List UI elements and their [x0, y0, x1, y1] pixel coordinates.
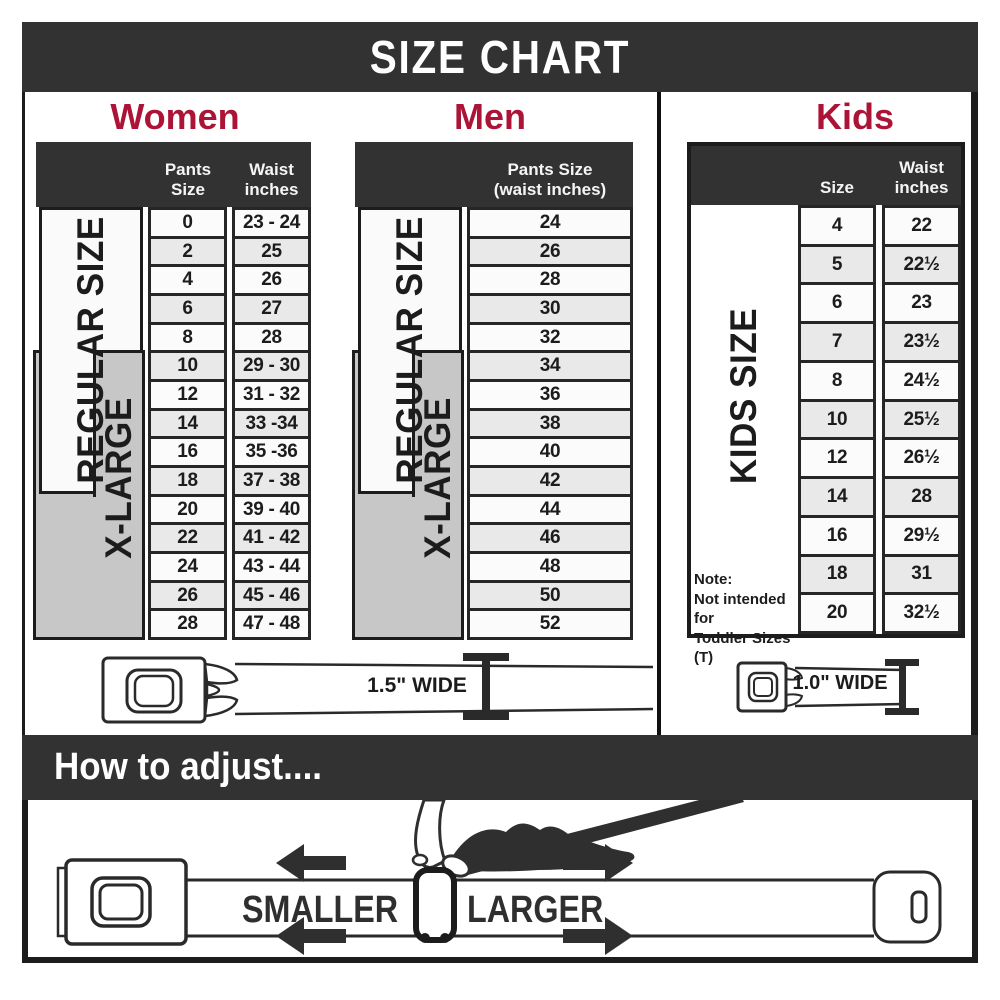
- kids-col-waist-header: Waist inches: [882, 158, 961, 198]
- women-col-size-header: Pants Size: [148, 160, 228, 200]
- women-col-waist-header: Waist inches: [232, 160, 311, 200]
- waist-cell: 22: [882, 205, 961, 247]
- size-cell: 48: [467, 551, 633, 583]
- waist-cell: 28: [232, 322, 311, 354]
- table-row: 24: [467, 207, 633, 239]
- size-cell: 10: [148, 350, 227, 382]
- size-chart: SIZE CHART Women Men Kids Pants Size Wai…: [0, 0, 1000, 1000]
- women-table-header: Pants Size Waist inches: [36, 142, 311, 207]
- table-row: 627: [148, 293, 311, 325]
- size-cell: 26: [148, 580, 227, 612]
- kids-note: Note: Not intended for Toddler Sizes (T): [694, 570, 802, 668]
- size-cell: 40: [467, 436, 633, 468]
- table-row: 32: [467, 322, 633, 354]
- table-row: 52: [467, 608, 633, 640]
- size-cell: 46: [467, 522, 633, 554]
- kids-belt-width-label: 1.0" WIDE: [770, 672, 910, 695]
- kids-heading: Kids: [745, 96, 965, 138]
- table-row: 2443 - 44: [148, 551, 311, 583]
- table-row: 522½: [798, 244, 961, 286]
- table-row: 28: [467, 264, 633, 296]
- table-row: 2032½: [798, 592, 961, 634]
- waist-cell: 22½: [882, 244, 961, 286]
- size-cell: 6: [798, 282, 876, 324]
- size-cell: 42: [467, 465, 633, 497]
- size-cell: 18: [798, 554, 876, 596]
- table-row: 2039 - 40: [148, 494, 311, 526]
- table-row: 2645 - 46: [148, 580, 311, 612]
- waist-cell: 35 -36: [232, 436, 311, 468]
- size-cell: 28: [148, 608, 227, 640]
- size-cell: 16: [148, 436, 227, 468]
- men-table: 242628303234363840424446485052: [467, 207, 633, 640]
- table-row: 34: [467, 350, 633, 382]
- waist-cell: 39 - 40: [232, 494, 311, 526]
- size-cell: 38: [467, 408, 633, 440]
- size-cell: 14: [798, 476, 876, 518]
- size-cell: 30: [467, 293, 633, 325]
- larger-label: LARGER: [467, 890, 603, 930]
- table-row: 26: [467, 236, 633, 268]
- size-cell: 8: [148, 322, 227, 354]
- table-row: 1831: [798, 554, 961, 596]
- table-row: 44: [467, 494, 633, 526]
- size-cell: 52: [467, 608, 633, 640]
- size-cell: 32: [467, 322, 633, 354]
- waist-cell: 23: [882, 282, 961, 324]
- adult-belt-width-label: 1.5" WIDE: [332, 674, 502, 698]
- size-cell: 2: [148, 236, 227, 268]
- panel-divider: [657, 92, 661, 735]
- size-cell: 50: [467, 580, 633, 612]
- waist-cell: 24½: [882, 360, 961, 402]
- waist-cell: 25½: [882, 399, 961, 441]
- size-cell: 4: [798, 205, 876, 247]
- waist-cell: 27: [232, 293, 311, 325]
- size-cell: 12: [798, 437, 876, 479]
- size-cell: 0: [148, 207, 227, 239]
- table-row: 1231 - 32: [148, 379, 311, 411]
- waist-cell: 29½: [882, 515, 961, 557]
- size-cell: 20: [148, 494, 227, 526]
- size-cell: 26: [467, 236, 633, 268]
- men-heading: Men: [380, 96, 600, 138]
- title-band: SIZE CHART: [22, 22, 978, 92]
- size-cell: 12: [148, 379, 227, 411]
- waist-cell: 31 - 32: [232, 379, 311, 411]
- size-cell: 8: [798, 360, 876, 402]
- waist-cell: 43 - 44: [232, 551, 311, 583]
- size-cell: 20: [798, 592, 876, 634]
- table-row: 1029 - 30: [148, 350, 311, 382]
- table-row: 1226½: [798, 437, 961, 479]
- page-title: SIZE CHART: [370, 30, 630, 84]
- size-cell: 44: [467, 494, 633, 526]
- size-cell: 34: [467, 350, 633, 382]
- waist-cell: 41 - 42: [232, 522, 311, 554]
- table-row: 426: [148, 264, 311, 296]
- table-row: 1635 -36: [148, 436, 311, 468]
- size-cell: 6: [148, 293, 227, 325]
- table-row: 48: [467, 551, 633, 583]
- waist-cell: 29 - 30: [232, 350, 311, 382]
- waist-cell: 47 - 48: [232, 608, 311, 640]
- table-row: 1025½: [798, 399, 961, 441]
- table-row: 40: [467, 436, 633, 468]
- size-cell: 4: [148, 264, 227, 296]
- size-cell: 18: [148, 465, 227, 497]
- women-heading: Women: [60, 96, 290, 138]
- waist-cell: 26½: [882, 437, 961, 479]
- table-row: 2847 - 48: [148, 608, 311, 640]
- size-cell: 10: [798, 399, 876, 441]
- waist-cell: 45 - 46: [232, 580, 311, 612]
- waist-cell: 33 -34: [232, 408, 311, 440]
- table-row: 1428: [798, 476, 961, 518]
- smaller-label: SMALLER: [242, 890, 378, 930]
- belt-slider-icon: [416, 870, 454, 943]
- women-xlarge-label: X-LARGE: [99, 336, 139, 621]
- waist-cell: 37 - 38: [232, 465, 311, 497]
- adjust-illustration: [28, 800, 972, 957]
- women-table: 023 - 242254266278281029 - 301231 - 3214…: [148, 207, 311, 640]
- size-cell: 7: [798, 321, 876, 363]
- kids-col-size-header: Size: [798, 178, 876, 198]
- table-row: 1629½: [798, 515, 961, 557]
- table-row: 824½: [798, 360, 961, 402]
- table-row: 225: [148, 236, 311, 268]
- kids-table-header: Size Waist inches: [691, 146, 961, 205]
- table-row: 422: [798, 205, 961, 247]
- men-col-header: Pants Size (waist inches): [467, 160, 633, 200]
- table-row: 1433 -34: [148, 408, 311, 440]
- adjust-band: How to adjust....: [22, 735, 978, 800]
- waist-cell: 25: [232, 236, 311, 268]
- waist-cell: 32½: [882, 592, 961, 634]
- kids-table: Size Waist inches KIDS SIZE Note: Not in…: [687, 142, 965, 638]
- waist-cell: 26: [232, 264, 311, 296]
- waist-cell: 28: [882, 476, 961, 518]
- size-cell: 22: [148, 522, 227, 554]
- table-row: 828: [148, 322, 311, 354]
- waist-cell: 23 - 24: [232, 207, 311, 239]
- table-row: 623: [798, 282, 961, 324]
- waist-cell: 23½: [882, 321, 961, 363]
- table-row: 30: [467, 293, 633, 325]
- size-cell: 24: [148, 551, 227, 583]
- table-row: 023 - 24: [148, 207, 311, 239]
- table-row: 42: [467, 465, 633, 497]
- adjust-title: How to adjust....: [54, 746, 322, 789]
- kids-size-label: KIDS SIZE: [724, 254, 764, 539]
- table-row: 1837 - 38: [148, 465, 311, 497]
- size-cell: 36: [467, 379, 633, 411]
- size-cell: 5: [798, 244, 876, 286]
- table-row: 50: [467, 580, 633, 612]
- size-cell: 14: [148, 408, 227, 440]
- table-row: 36: [467, 379, 633, 411]
- kids-rows: 422522½623723½824½1025½1226½14281629½183…: [798, 205, 961, 634]
- waist-cell: 31: [882, 554, 961, 596]
- men-xlarge-label: X-LARGE: [418, 336, 458, 621]
- men-table-header: Pants Size (waist inches): [355, 142, 633, 207]
- size-cell: 24: [467, 207, 633, 239]
- table-row: 46: [467, 522, 633, 554]
- table-row: 723½: [798, 321, 961, 363]
- size-cell: 28: [467, 264, 633, 296]
- size-cell: 16: [798, 515, 876, 557]
- table-row: 38: [467, 408, 633, 440]
- table-row: 2241 - 42: [148, 522, 311, 554]
